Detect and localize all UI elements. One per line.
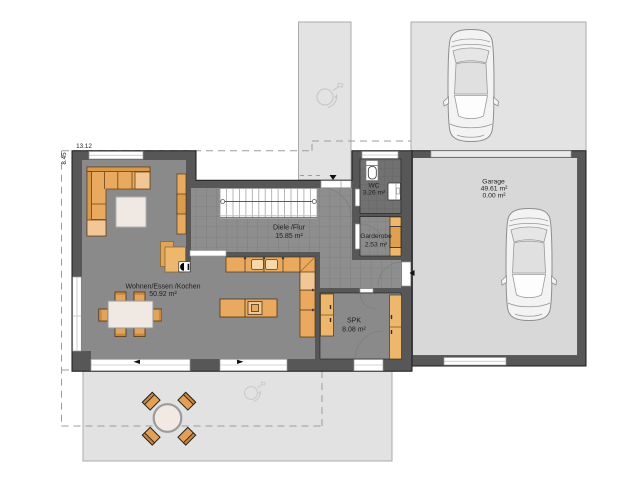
- svg-text:13.12: 13.12: [76, 143, 92, 150]
- svg-text:15.85 m²: 15.85 m²: [275, 233, 303, 240]
- svg-text:49.61 m²: 49.61 m²: [481, 185, 509, 192]
- svg-text:8.45: 8.45: [61, 152, 68, 165]
- svg-text:Garderobe: Garderobe: [360, 233, 392, 240]
- svg-text:Garage: Garage: [482, 178, 505, 185]
- svg-text:2.53 m²: 2.53 m²: [365, 242, 388, 249]
- svg-text:WC: WC: [369, 182, 380, 189]
- svg-text:8.08 m²: 8.08 m²: [342, 327, 366, 334]
- svg-text:Diele /Flur: Diele /Flur: [273, 225, 306, 232]
- svg-text:3.26 m²: 3.26 m²: [363, 190, 386, 197]
- svg-text:SPK: SPK: [347, 318, 361, 325]
- svg-text:50.92 m²: 50.92 m²: [149, 291, 177, 298]
- svg-text:Wohnen/Essen /Kochen: Wohnen/Essen /Kochen: [126, 284, 201, 291]
- svg-text:0.00 m²: 0.00 m²: [482, 192, 506, 199]
